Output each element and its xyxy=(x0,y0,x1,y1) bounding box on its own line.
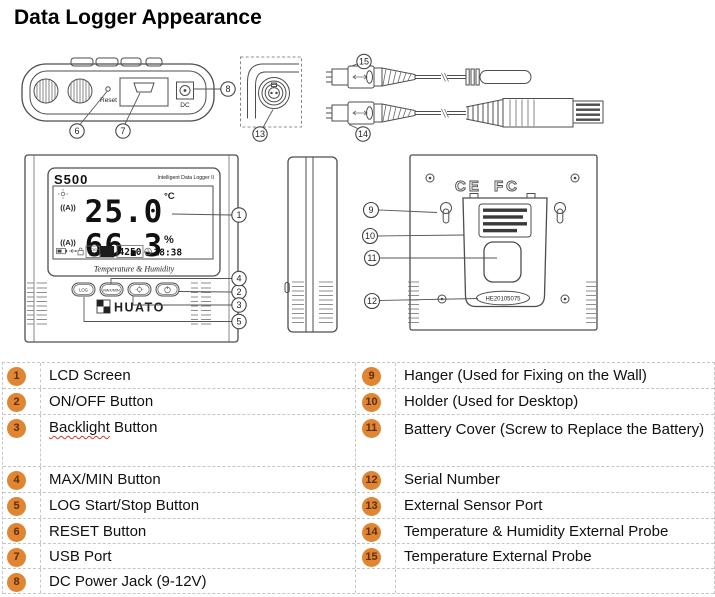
legend-number-badge: 4 xyxy=(7,471,26,490)
brand-logo: HUATO xyxy=(97,300,165,315)
log-button: LOG xyxy=(72,283,95,296)
humidity-unit: % xyxy=(164,234,174,246)
legend-number-badge: 7 xyxy=(7,548,26,567)
legend-row: 8 DC Power Jack (9-12V) xyxy=(3,569,714,594)
model-logo: S500 xyxy=(54,172,88,187)
front-view-drawing: S500 Intelligent Data Logger II ((A)) 25… xyxy=(25,155,238,342)
legend-number-badge: 14 xyxy=(362,523,381,542)
top-view-drawing: Reset DC xyxy=(22,58,214,121)
temperature-value: 25.0 xyxy=(85,194,164,230)
legend-number-badge: 12 xyxy=(362,471,381,490)
top-case-outline xyxy=(22,64,214,121)
legend-label: RESET Button xyxy=(41,519,356,543)
device-diagram: Reset DC xyxy=(0,45,715,360)
callout-6: 6 xyxy=(70,92,107,139)
svg-text:9: 9 xyxy=(368,205,373,215)
backlight-button xyxy=(128,283,151,296)
probe-plug-bottom xyxy=(326,102,466,124)
callout-15: 15 xyxy=(350,54,371,68)
svg-text:1: 1 xyxy=(236,210,241,220)
legend-label: Backlight Button xyxy=(41,415,356,466)
callout-7: 7 xyxy=(116,93,140,138)
legend-label: DC Power Jack (9-12V) xyxy=(41,569,356,593)
memory-count: 4250 xyxy=(119,247,142,258)
svg-text:5: 5 xyxy=(236,317,241,327)
side-vent-left xyxy=(292,282,304,323)
legend-row: 3 Backlight Button 11 Battery Cover (Scr… xyxy=(3,415,714,467)
usb-icon-dot xyxy=(75,250,77,252)
sun-icon-rays xyxy=(58,189,68,199)
back-view-drawing: CE FC HE20105075 xyxy=(408,155,597,330)
legend-number-badge: 1 xyxy=(7,367,26,386)
front-vent-left xyxy=(27,283,47,324)
backlight-icon xyxy=(138,288,142,292)
hanger-keyhole-right xyxy=(555,203,566,224)
maxmin-button-label: MAX/MIN xyxy=(103,288,120,292)
port-ring xyxy=(259,78,290,109)
mem-indicator-cn: 内存 xyxy=(103,251,111,257)
legend-row: 6 RESET Button 14 Temperature & Humidity… xyxy=(3,519,714,544)
callout-12: 12 xyxy=(365,294,479,309)
svg-text:3: 3 xyxy=(236,300,241,310)
vent-hatch xyxy=(71,79,89,103)
legend-label: MAX/MIN Button xyxy=(41,467,356,492)
top-button xyxy=(71,58,93,66)
legend-number-badge: 8 xyxy=(7,573,26,592)
legend-table: 1 LCD Screen 9 Hanger (Used for Fixing o… xyxy=(2,362,715,594)
svg-text:12: 12 xyxy=(367,296,377,306)
top-button xyxy=(121,58,141,66)
callout-1: 1 xyxy=(172,208,246,222)
legend-row: 2 ON/OFF Button 10 Holder (Used for Desk… xyxy=(3,389,714,415)
reset-hole xyxy=(106,87,110,91)
top-button xyxy=(146,58,162,66)
legend-number-badge: 3 xyxy=(7,419,26,438)
temperature-unit: °C xyxy=(164,191,175,202)
vent-hatch xyxy=(37,79,55,103)
callout-10: 10 xyxy=(363,229,465,244)
antenna-icon: ((A)) xyxy=(60,203,76,212)
legend-label: USB Port xyxy=(41,544,356,568)
svg-text:15: 15 xyxy=(359,57,369,67)
battery-cover-drawing xyxy=(484,242,521,282)
misspelled-word: Backlight xyxy=(49,419,110,436)
svg-text:7: 7 xyxy=(120,126,125,136)
legend-label: Temperature & Humidity External Probe xyxy=(396,519,714,543)
port-pin xyxy=(270,92,272,94)
maxmin-button: MAX/MIN xyxy=(100,283,123,296)
legend-number-badge: 5 xyxy=(7,497,26,516)
svg-text:6: 6 xyxy=(74,126,79,136)
side-view-drawing xyxy=(285,157,337,332)
legend-label: Battery Cover (Screw to Replace the Batt… xyxy=(396,415,714,466)
dc-label: DC xyxy=(180,102,190,109)
svg-text:4: 4 xyxy=(236,274,241,284)
svg-text:11: 11 xyxy=(367,253,376,263)
spec-label xyxy=(479,204,531,237)
battery-icon-tip xyxy=(66,250,68,253)
brand-name: HUATO xyxy=(114,301,165,315)
time-value: 18:38 xyxy=(154,248,183,259)
legend-number-badge: 2 xyxy=(7,393,26,412)
legend-label: LCD Screen xyxy=(41,363,356,388)
antenna-icon: ((A)) xyxy=(60,238,76,247)
top-button xyxy=(96,58,118,66)
legend-label: External Sensor Port xyxy=(396,493,714,518)
legend-number-badge: 6 xyxy=(7,523,26,542)
legend-number-badge: 13 xyxy=(362,497,381,516)
legend-label: Holder (Used for Desktop) xyxy=(396,389,714,414)
log-button-label: LOG xyxy=(79,287,88,292)
legend-label: Temperature External Probe xyxy=(396,544,714,568)
hanger-keyhole-left xyxy=(441,203,452,224)
callout-14: 14 xyxy=(349,125,370,142)
legend-row: 5 LOG Start/Stop Button 13 External Sens… xyxy=(3,493,714,519)
legend-number-badge: 10 xyxy=(362,393,381,412)
log-indicator-cn: 记录 xyxy=(89,251,97,257)
legend-row: 1 LCD Screen 9 Hanger (Used for Fixing o… xyxy=(3,363,714,389)
legend-number-badge: 9 xyxy=(362,367,381,386)
battery-icon-fill xyxy=(58,250,62,253)
legend-label: Hanger (Used for Fixing on the Wall) xyxy=(396,363,714,388)
legend-label: Serial Number xyxy=(396,467,714,492)
reset-label: Reset xyxy=(100,97,117,104)
ce-mark: CE xyxy=(455,178,482,195)
legend-label: ON/OFF Button xyxy=(41,389,356,414)
callout-11: 11 xyxy=(365,251,498,266)
legend-row: 7 USB Port 15 Temperature External Probe xyxy=(3,544,714,569)
probe-plug-top xyxy=(326,66,466,88)
port-pin xyxy=(275,92,277,94)
front-vent-right xyxy=(191,283,211,324)
port-ring xyxy=(269,88,280,99)
screen-caption: Temperature & Humidity xyxy=(94,265,175,274)
legend-number-badge: 11 xyxy=(362,419,381,438)
side-vent-right xyxy=(319,282,333,323)
dc-jack-pin xyxy=(184,89,187,92)
temperature-probe-drawing xyxy=(466,69,531,85)
legend-label-empty xyxy=(396,569,714,593)
svg-text:10: 10 xyxy=(365,231,375,241)
sun-icon xyxy=(61,192,65,196)
page-title: Data Logger Appearance xyxy=(14,6,262,30)
lock-icon xyxy=(78,251,83,255)
mini-usb-icon xyxy=(134,83,154,92)
serial-number-text: HE20105075 xyxy=(485,297,521,303)
usb-icon xyxy=(69,249,75,253)
backlight-icon-rays xyxy=(136,286,144,294)
temp-humidity-probe-drawing xyxy=(466,99,603,128)
callout-2: 2 xyxy=(178,285,246,299)
legend-row: 4 MAX/MIN Button 12 Serial Number xyxy=(3,467,714,493)
legend-label: LOG Start/Stop Button xyxy=(41,493,356,518)
fcc-mark: FC xyxy=(494,178,520,195)
lcd-subtitle: Intelligent Data Logger II xyxy=(157,175,214,181)
sensor-port-detail-drawing xyxy=(241,57,302,127)
svg-text:14: 14 xyxy=(358,129,368,139)
side-seam-lines xyxy=(306,157,313,332)
svg-text:2: 2 xyxy=(236,287,241,297)
svg-text:8: 8 xyxy=(225,84,230,94)
back-vent-right xyxy=(586,282,596,323)
svg-text:13: 13 xyxy=(255,129,265,139)
power-button xyxy=(156,283,179,296)
serial-number-plate: HE20105075 xyxy=(477,291,530,305)
callout-9: 9 xyxy=(364,203,438,218)
legend-number-badge: 15 xyxy=(362,548,381,567)
